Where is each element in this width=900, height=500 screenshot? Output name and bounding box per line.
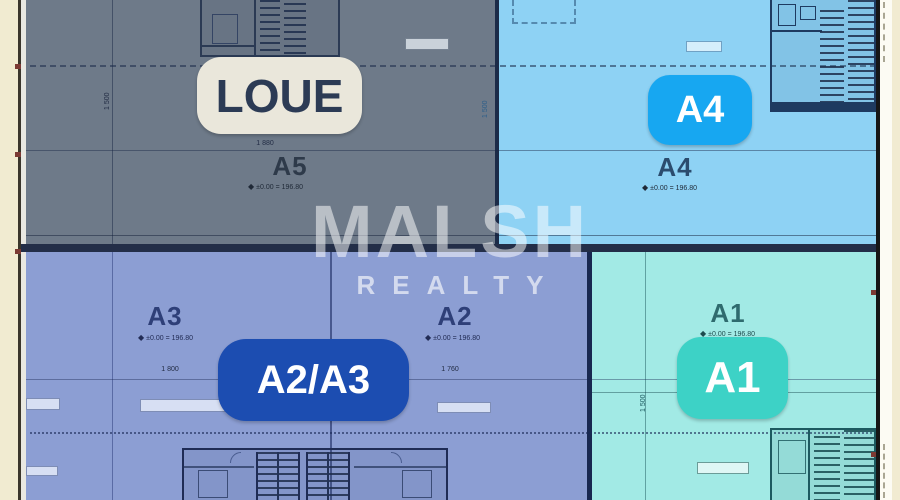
survey-tick <box>871 452 876 457</box>
plan-label-a3: A3 <box>135 301 195 332</box>
benchmark-icon: ◆ <box>425 334 431 342</box>
annotation-box <box>437 402 491 413</box>
status-badge-loue: LOUE <box>197 57 362 134</box>
axis-dashed-line <box>30 65 876 67</box>
annotation-box <box>26 466 58 476</box>
door-swing-arc <box>230 452 252 474</box>
stair-rail <box>808 430 810 500</box>
elevation-mark-a2: ◆ ±0.00 = 196.80 <box>425 334 480 342</box>
room-fixture <box>800 6 816 20</box>
benchmark-icon: ◆ <box>138 334 144 342</box>
annotation-box <box>26 398 60 410</box>
dimension-a4-height: 1 500 <box>482 100 489 118</box>
watermark-subtitle: REALTY <box>0 270 900 301</box>
elevation-mark-a4: ◆ ±0.00 = 196.80 <box>642 184 697 192</box>
dimension-a3-width: 1 800 <box>130 366 210 373</box>
plan-label-a5: A5 <box>255 151 325 182</box>
axis-dotted-line <box>30 432 876 434</box>
stair-rail <box>277 452 279 500</box>
stairwell-a1 <box>770 428 876 500</box>
dimension-a5-height: 1 500 <box>104 92 111 110</box>
elevation-text: ±0.00 = 196.80 <box>146 335 193 342</box>
dimension-a5-width: 1 880 <box>235 140 295 147</box>
unit-badge-a1[interactable]: A1 <box>677 337 788 419</box>
floorplan-canvas: A5 A4 A3 A2 A1 ◆ ±0.00 = 196.80 ◆ ±0.00 … <box>0 0 900 500</box>
stairwell-core-a2-a3 <box>182 448 448 500</box>
dashed-opening <box>512 0 576 24</box>
elevation-text: ±0.00 = 196.80 <box>256 184 303 191</box>
elevation-text: ±0.00 = 196.80 <box>650 185 697 192</box>
stair-treads <box>284 3 306 57</box>
plan-line <box>26 150 876 151</box>
watermark-brand: MALSH <box>0 194 900 270</box>
stair-treads <box>844 430 874 500</box>
stair-treads <box>848 0 874 104</box>
plan-label-a4: A4 <box>645 152 705 183</box>
elevation-mark-a5: ◆ ±0.00 = 196.80 <box>248 183 303 191</box>
plan-line <box>202 45 254 47</box>
plan-line <box>772 102 874 110</box>
elevation-text: ±0.00 = 196.80 <box>433 335 480 342</box>
plan-line <box>184 466 254 468</box>
survey-tick <box>15 152 21 157</box>
plan-line <box>354 466 446 468</box>
stair-treads <box>820 10 844 104</box>
unit-badge-a2-a3[interactable]: A2/A3 <box>218 339 409 421</box>
dimension-box <box>405 38 449 50</box>
dimension-a2-width: 1 760 <box>415 366 485 373</box>
plan-label-a2: A2 <box>425 301 485 332</box>
plan-line <box>254 0 256 57</box>
room-fixture <box>212 14 238 44</box>
unit-badge-a4[interactable]: A4 <box>648 75 752 145</box>
benchmark-icon: ◆ <box>642 184 648 192</box>
stairwell-a5 <box>200 0 340 57</box>
plan-label-a1: A1 <box>700 298 756 329</box>
survey-tick <box>15 64 21 69</box>
stair-treads <box>814 436 840 500</box>
dimension-box <box>686 41 722 52</box>
annotation-box <box>697 462 749 474</box>
room-fixture <box>198 470 228 498</box>
stair-treads <box>260 0 280 57</box>
room-fixture <box>778 4 796 26</box>
room-fixture <box>402 470 432 498</box>
margin-dashed-line <box>883 444 885 498</box>
dimension-a1-height: 1 500 <box>640 394 647 412</box>
elevation-mark-a3: ◆ ±0.00 = 196.80 <box>138 334 193 342</box>
door-swing-arc <box>380 452 402 474</box>
benchmark-icon: ◆ <box>248 183 254 191</box>
stair-rail <box>327 452 329 500</box>
margin-dashed-line <box>883 2 885 62</box>
stairwell-a4 <box>770 0 876 112</box>
plan-line <box>772 30 822 32</box>
room-fixture <box>778 440 806 474</box>
